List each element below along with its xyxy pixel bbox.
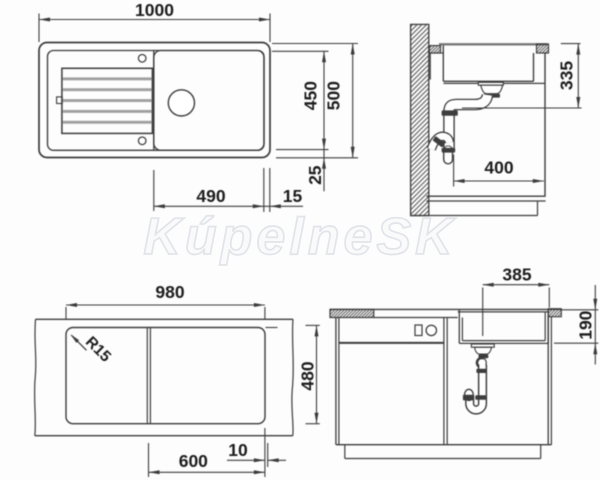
svg-text:600: 600 xyxy=(179,451,208,471)
svg-text:500: 500 xyxy=(323,81,343,110)
svg-text:10: 10 xyxy=(228,440,248,460)
svg-text:190: 190 xyxy=(576,310,596,339)
svg-text:490: 490 xyxy=(196,186,225,206)
svg-text:400: 400 xyxy=(484,157,513,177)
svg-text:450: 450 xyxy=(300,81,320,110)
svg-text:980: 980 xyxy=(155,282,184,302)
svg-text:335: 335 xyxy=(556,61,576,90)
svg-text:25: 25 xyxy=(305,165,325,185)
svg-text:1000: 1000 xyxy=(135,0,174,20)
svg-text:480: 480 xyxy=(298,361,318,390)
svg-text:15: 15 xyxy=(283,186,303,206)
svg-text:385: 385 xyxy=(502,264,531,284)
svg-text:R15: R15 xyxy=(82,333,114,365)
